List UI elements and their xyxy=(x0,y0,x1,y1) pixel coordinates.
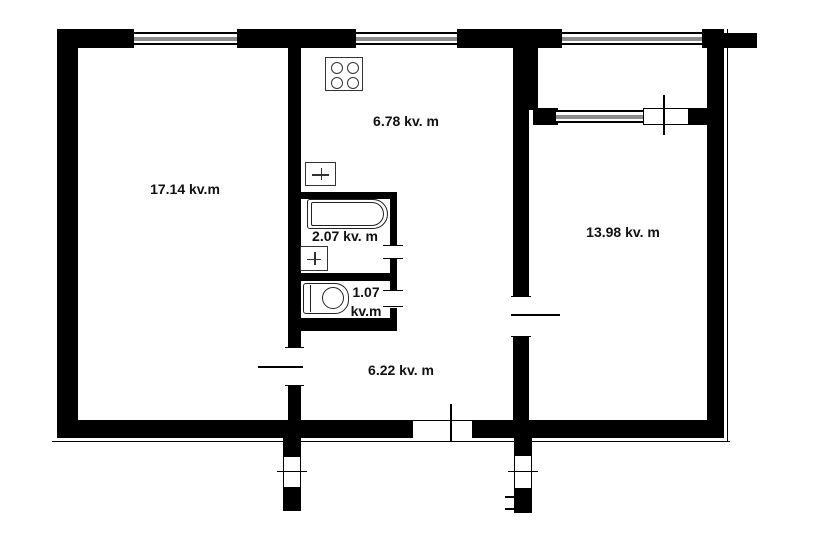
stove-burner xyxy=(331,62,343,74)
stove-icon xyxy=(325,57,363,91)
window-bedroom xyxy=(556,110,644,123)
room-label-kitchen: 6.78 kv. m xyxy=(336,113,476,130)
loggia-sill-right xyxy=(688,108,707,125)
window-glass xyxy=(562,37,702,41)
wall-top-pier-1 xyxy=(57,29,134,48)
stub-left-tick xyxy=(277,471,307,472)
wall-bottom-right xyxy=(472,420,724,438)
bedroom-door-jamb-top xyxy=(511,296,531,297)
wall-bottom-outline xyxy=(52,441,730,442)
entry-door-swing xyxy=(450,404,452,442)
living-door-jamb-top xyxy=(285,347,304,348)
sink-icon xyxy=(305,162,336,186)
stub-left-lower xyxy=(283,488,301,511)
loggia-sill-left xyxy=(533,108,558,125)
stub-right-dash-1 xyxy=(505,496,515,498)
stub-right-tick xyxy=(508,471,538,472)
stove-burner xyxy=(331,77,343,89)
wall-bath-divider xyxy=(301,273,390,281)
wall-right-outline xyxy=(727,29,728,441)
wall-bedroom-lower xyxy=(513,337,529,420)
bathtub-basin xyxy=(311,202,384,226)
room-label-bathroom: 2.07 kv. m xyxy=(275,228,415,245)
room-label-hallway: 6.22 kv. m xyxy=(331,362,471,379)
stub-right-lower xyxy=(514,489,532,513)
entry-threshold xyxy=(413,420,472,421)
window-glass xyxy=(356,37,457,41)
window-kitchen xyxy=(356,32,457,45)
wall-top-pier-2 xyxy=(237,29,356,48)
wall-top-pier-3 xyxy=(457,29,562,48)
stub-left-upper xyxy=(283,438,301,456)
living-door-jamb-bottom xyxy=(285,385,304,386)
bathroom-door-tick-top xyxy=(383,245,403,246)
wall-living-lower xyxy=(288,386,301,420)
sink-icon xyxy=(300,246,328,271)
wall-left-exterior xyxy=(57,29,78,438)
stove-burner xyxy=(347,77,359,89)
toilet-tank xyxy=(310,285,311,312)
window-living xyxy=(134,32,237,45)
room-label-bedroom: 13.98 kv. m xyxy=(553,224,693,241)
balcony-door xyxy=(643,108,689,125)
bedroom-door-jamb-bottom xyxy=(511,336,531,337)
balcony-door-swing xyxy=(663,95,665,135)
bedroom-door xyxy=(511,314,560,316)
window-glass xyxy=(134,37,237,41)
living-room-door xyxy=(258,366,303,368)
wall-bedroom-mid xyxy=(513,108,529,297)
wall-bedroom-upper xyxy=(513,48,538,110)
floor-plan: 17.14 kv.m 6.78 kv. m 2.07 kv. m 1.07 kv… xyxy=(0,0,820,544)
wall-stub-top-right xyxy=(724,33,757,48)
bathtub-icon xyxy=(307,199,388,229)
wall-bottom-left xyxy=(57,420,413,438)
window-loggia xyxy=(562,32,702,45)
stub-right-dash-2 xyxy=(505,508,515,510)
stub-left-opening xyxy=(283,456,301,488)
stub-right-opening xyxy=(514,455,532,489)
room-label-toilet-unit: kv.m xyxy=(336,303,396,320)
stub-right-upper xyxy=(514,438,532,455)
room-label-toilet-value: 1.07 xyxy=(336,284,396,301)
window-glass xyxy=(556,115,644,119)
room-label-living: 17.14 kv.m xyxy=(115,181,255,198)
wall-living-upper xyxy=(288,48,301,348)
wall-right-exterior xyxy=(707,29,724,438)
stove-burner xyxy=(347,62,359,74)
wall-bath-top xyxy=(301,192,397,199)
bathroom-door-tick-bottom xyxy=(383,258,403,259)
